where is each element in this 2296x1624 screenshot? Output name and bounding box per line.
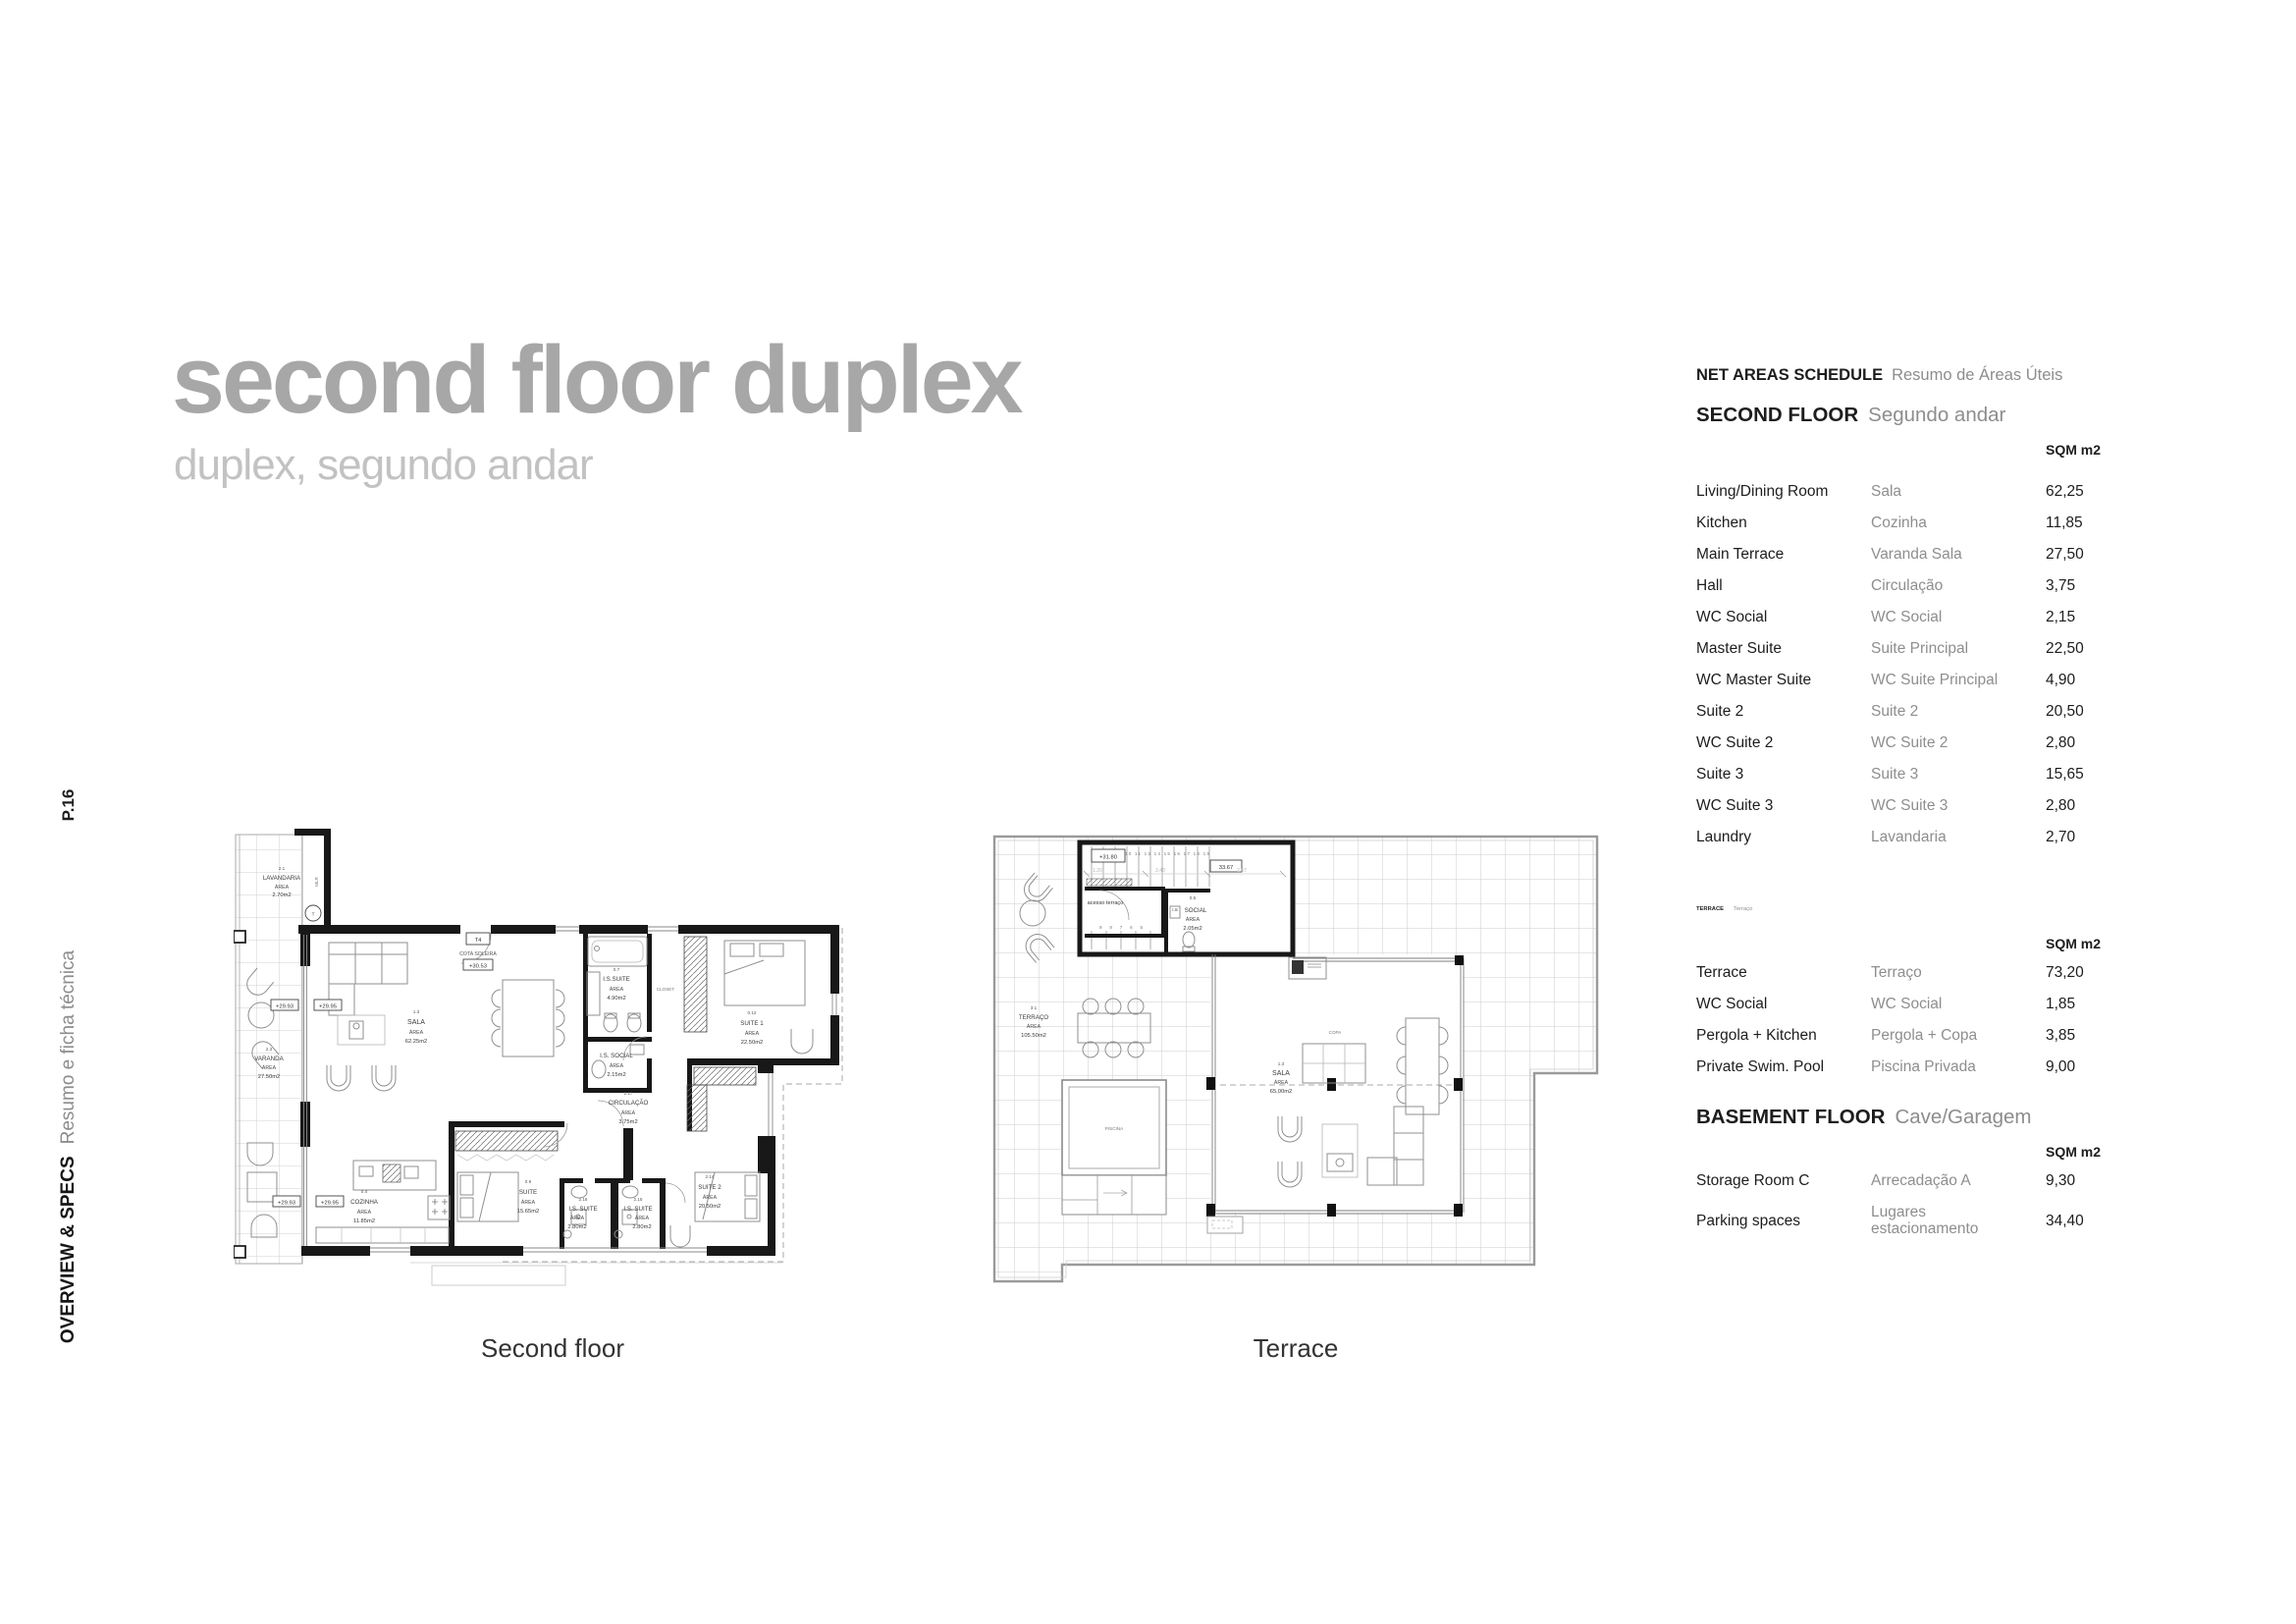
- sidebar-section-en: OVERVIEW & SPECS: [58, 1156, 79, 1343]
- page-subtitle: duplex, segundo andar: [174, 441, 1021, 490]
- room-name: SALA: [407, 1019, 425, 1026]
- row-pt: Lugares estacionamento: [1871, 1204, 1999, 1237]
- armchairs: [327, 1065, 396, 1091]
- schedule-title-pt: Resumo de Áreas Úteis: [1892, 366, 2062, 384]
- armchair-suite2: [670, 1225, 690, 1247]
- row-en: Laundry: [1696, 829, 1871, 845]
- room-sqm: 20.50m2: [699, 1204, 721, 1210]
- plan1-room-labels: 2.1 LAVANDARIA ÁREA 2.70m2 2.3 VARANDA Á…: [254, 866, 764, 1230]
- room-name: SUITE 2: [698, 1184, 721, 1191]
- unit-header-row: SQM m2: [1696, 442, 2124, 458]
- area-word: ÁREA: [1274, 1079, 1289, 1086]
- table-row: TerraceTerraço73,20: [1696, 964, 2124, 981]
- room-no: 3.1: [1031, 1005, 1038, 1010]
- unit-header-row: SQM m2: [1696, 1144, 2124, 1160]
- unit-header: SQM m2: [2046, 442, 2124, 458]
- row-en: Storage Room C: [1696, 1172, 1871, 1189]
- row-en: Kitchen: [1696, 514, 1871, 531]
- table-row: LaundryLavandaria2,70: [1696, 829, 2124, 845]
- section-name-pt: Cave/Garagem: [1895, 1106, 2031, 1128]
- room-sqm: 27.50m2: [258, 1074, 281, 1080]
- row-pt: WC Suite Principal: [1871, 672, 1999, 688]
- row-en: Hall: [1696, 577, 1871, 594]
- counter-divisions: [342, 1227, 425, 1243]
- row-pt: WC Social: [1871, 609, 1999, 625]
- table-row: Storage Room CArrecadação A9,30: [1696, 1172, 2124, 1189]
- level-marker: +29.95: [319, 1004, 337, 1010]
- room-no: 0.5: [1190, 895, 1197, 900]
- room-name: COZINHA: [350, 1199, 379, 1206]
- room-name: LAVANDARIA: [263, 875, 301, 882]
- table-row: Pergola + KitchenPergola + Copa3,85: [1696, 1027, 2124, 1044]
- room-name: I.S. SUITE: [623, 1206, 652, 1213]
- room-no: 0.4: [361, 1189, 368, 1194]
- table-row: WC Suite 3WC Suite 32,80: [1696, 797, 2124, 814]
- row-sqm: 9,00: [2046, 1058, 2124, 1075]
- room-name: SUITE 1: [740, 1020, 764, 1027]
- row-pt: Cozinha: [1871, 514, 1999, 531]
- dining-table: [492, 980, 564, 1056]
- room-sqm: 22.50m2: [741, 1040, 764, 1046]
- machine-label: MLR: [314, 876, 319, 886]
- section-name-en: BASEMENT FLOOR: [1696, 1106, 1885, 1128]
- sidebar-section-pt: Resumo e ficha técnica: [58, 950, 79, 1145]
- row-sqm: 20,50: [2046, 703, 2124, 720]
- room-name: I.S: [1172, 907, 1178, 912]
- kitchen-island: [353, 1161, 436, 1190]
- room-sqm: 15.65m2: [517, 1209, 540, 1215]
- table-row: Master SuiteSuite Principal22,50: [1696, 640, 2124, 657]
- level-marker: +29.95: [321, 1201, 339, 1207]
- row-sqm: 3,85: [2046, 1027, 2124, 1044]
- lower-balcony-outline: [432, 1266, 565, 1285]
- room-sqm: 105.50m2: [1021, 1033, 1046, 1039]
- table-row: Suite 3Suite 315,65: [1696, 766, 2124, 783]
- page-number: P.16: [59, 789, 79, 822]
- row-pt: Piscina Privada: [1871, 1058, 1999, 1075]
- row-sqm: 2,80: [2046, 734, 2124, 751]
- room-name: I.S. SOCIAL: [600, 1053, 633, 1059]
- row-pt: WC Suite 3: [1871, 797, 1999, 814]
- room-sqm: 2.80m2: [632, 1224, 651, 1230]
- row-pt: Terraço: [1871, 964, 1999, 981]
- row-en: WC Suite 3: [1696, 797, 1871, 814]
- area-word: ÁREA: [1186, 916, 1201, 923]
- pool-deck: [1062, 1175, 1166, 1215]
- section-name-pt: Terraço: [1734, 906, 1752, 912]
- roof-overhang-dashed: [499, 928, 842, 1262]
- room-no: 0.12: [748, 1010, 757, 1015]
- terrace-plan: +31.80 33.67 10 11 13 14 15 16 17 18 19 …: [989, 830, 1618, 1291]
- row-sqm: 4,90: [2046, 672, 2124, 688]
- basement-rows: Storage Room CArrecadação A9,30 Parking …: [1696, 1172, 2124, 1237]
- room-sqm: 65,00m2: [1270, 1089, 1293, 1095]
- area-word: ÁREA: [409, 1029, 424, 1036]
- area-word: ÁREA: [703, 1194, 718, 1201]
- row-en: WC Social: [1696, 996, 1871, 1012]
- section-head-second-floor: SECOND FLOORSegundo andar: [1696, 403, 2124, 428]
- plan1-caption: Second floor: [234, 1333, 872, 1363]
- room-no: 2.15: [634, 1197, 643, 1202]
- level-marker: +31.80: [1099, 855, 1117, 861]
- room-sqm: 11.85m2: [353, 1218, 375, 1224]
- area-word: ÁREA: [1027, 1023, 1041, 1030]
- room-name: SUITE: [519, 1189, 537, 1196]
- row-pt: WC Social: [1871, 996, 1999, 1012]
- row-sqm: 2,15: [2046, 609, 2124, 625]
- row-sqm: 11,85: [2046, 514, 2124, 531]
- row-pt: Varanda Sala: [1871, 546, 1999, 563]
- room-name: CLOSET: [657, 987, 675, 992]
- row-sqm: 15,65: [2046, 766, 2124, 783]
- row-pt: Pergola + Copa: [1871, 1027, 1999, 1044]
- step-numbers-top: 10 11 13 14 15 16 17 18 19: [1125, 851, 1209, 856]
- row-en: Pergola + Kitchen: [1696, 1027, 1871, 1044]
- row-en: Suite 3: [1696, 766, 1871, 783]
- room-sqm: 62.25m2: [405, 1039, 428, 1045]
- terrace-rows: TerraceTerraço73,20 WC SocialWC Social1,…: [1696, 964, 2124, 1075]
- dim-label: 1.20: [1093, 868, 1102, 874]
- table-row: WC Master SuiteWC Suite Principal4,90: [1696, 672, 2124, 688]
- row-sqm: 1,85: [2046, 996, 2124, 1012]
- table-row: Main TerraceVaranda Sala27,50: [1696, 546, 2124, 563]
- row-sqm: 2,70: [2046, 829, 2124, 845]
- armchair-suite1: [791, 1029, 813, 1054]
- table-row: KitchenCozinha11,85: [1696, 514, 2124, 531]
- area-word: ÁREA: [610, 1062, 624, 1069]
- kitchen-counter: [316, 1227, 449, 1243]
- table-row: WC Suite 2WC Suite 22,80: [1696, 734, 2124, 751]
- toilets-is-suite: [604, 1013, 641, 1032]
- room-sqm: 4.90m2: [607, 996, 625, 1001]
- room-no: 2.16: [579, 1197, 588, 1202]
- room-no: 2.14: [706, 1174, 715, 1179]
- bed-suite1: [724, 941, 805, 1005]
- vanity: [587, 972, 600, 1015]
- row-sqm: 34,40: [2046, 1213, 2124, 1229]
- area-word: ÁREA: [745, 1030, 760, 1037]
- unit-header: SQM m2: [2046, 936, 2124, 951]
- second-floor-rows: Living/Dining RoomSala62,25 KitchenCozin…: [1696, 483, 2124, 845]
- table-row: Parking spacesLugares estacionamento34,4…: [1696, 1204, 2124, 1237]
- room-no: 0.9: [525, 1179, 532, 1184]
- area-word: ÁREA: [357, 1209, 372, 1216]
- table-row: WC SocialWC Social2,15: [1696, 609, 2124, 625]
- row-en: Master Suite: [1696, 640, 1871, 657]
- table-row: HallCirculação3,75: [1696, 577, 2124, 594]
- row-pt: Suite Principal: [1871, 640, 1999, 657]
- section-head-basement: BASEMENT FLOORCave/Garagem: [1696, 1105, 2124, 1130]
- row-en: WC Master Suite: [1696, 672, 1871, 688]
- net-areas-schedule: NET AREAS SCHEDULEResumo de Áreas Úteis …: [1696, 365, 2124, 1252]
- room-sqm: 3.75m2: [618, 1119, 637, 1125]
- area-word: ÁREA: [275, 884, 290, 891]
- room-sqm: 2.80m2: [567, 1224, 586, 1230]
- cota-soleira-label: COTA SOLEIRA: [459, 951, 497, 957]
- row-en: WC Suite 2: [1696, 734, 1871, 751]
- area-word: ÁREA: [635, 1215, 650, 1221]
- room-name: CIRCULAÇÃO: [609, 1100, 649, 1107]
- sidebar-section-label: OVERVIEW & SPECSResumo e ficha técnica: [58, 950, 80, 1343]
- area-word: ÁREA: [610, 986, 624, 993]
- row-en: Terrace: [1696, 964, 1871, 981]
- row-pt: Suite 3: [1871, 766, 1999, 783]
- title-block: second floor duplex duplex, segundo anda…: [172, 332, 1021, 490]
- coffee-table: [338, 1015, 385, 1045]
- section-name-en: TERRACE: [1696, 906, 1724, 912]
- dim-label: 2.40: [1155, 868, 1165, 874]
- t4-label: T4: [475, 938, 483, 944]
- room-name: VARANDA: [254, 1056, 284, 1062]
- room-no: 1.3: [1278, 1061, 1285, 1066]
- stair-hatch: [1087, 879, 1132, 886]
- area-word: ÁREA: [521, 1199, 536, 1206]
- unit-header-row: SQM m2: [1696, 936, 2124, 951]
- section-head-terrace: TERRACETerraço: [1696, 896, 2124, 922]
- row-en: Private Swim. Pool: [1696, 1058, 1871, 1075]
- bed-suite: [457, 1172, 518, 1221]
- schedule-title-en: NET AREAS SCHEDULE: [1696, 366, 1883, 384]
- row-sqm: 2,80: [2046, 797, 2124, 814]
- page-title: second floor duplex: [172, 332, 1021, 427]
- room-name: SALA: [1272, 1070, 1290, 1077]
- section-name-en: SECOND FLOOR: [1696, 404, 1858, 426]
- room-sqm: 2.05m2: [1183, 926, 1201, 932]
- room-no: 0.7: [614, 967, 620, 972]
- room-no: 2.17: [624, 1091, 633, 1096]
- level-marker: +29.93: [278, 1201, 295, 1207]
- bathtub: [588, 937, 647, 966]
- area-word: ÁREA: [570, 1215, 585, 1221]
- row-sqm: 73,20: [2046, 964, 2124, 981]
- unit-header: SQM m2: [2046, 1144, 2124, 1160]
- row-sqm: 62,25: [2046, 483, 2124, 500]
- schedule-title: NET AREAS SCHEDULEResumo de Áreas Úteis: [1696, 365, 2124, 385]
- area-word: ÁREA: [621, 1110, 636, 1116]
- room-name: TERRAÇO: [1019, 1014, 1048, 1021]
- room-name: PISCINA: [1105, 1126, 1124, 1131]
- level-marker: +29.93: [276, 1004, 294, 1010]
- room-sqm: 2.70m2: [272, 893, 291, 898]
- cota-marker: 33.67: [1219, 865, 1234, 871]
- row-sqm: 9,30: [2046, 1172, 2124, 1189]
- row-pt: Sala: [1871, 483, 1999, 500]
- row-pt: Arrecadação A: [1871, 1172, 1999, 1189]
- dim-label: 2.67: [1237, 868, 1247, 874]
- row-en: Living/Dining Room: [1696, 483, 1871, 500]
- plan2-caption: Terrace: [989, 1333, 1602, 1363]
- area-word: ÁREA: [262, 1064, 277, 1071]
- step-numbers-bottom: 9 8 7 6 5: [1099, 925, 1143, 930]
- row-sqm: 27,50: [2046, 546, 2124, 563]
- row-pt: Suite 2: [1871, 703, 1999, 720]
- row-en: WC Social: [1696, 609, 1871, 625]
- room-name: COPA: [1329, 1030, 1343, 1035]
- room-name: I.S. SUITE: [568, 1206, 597, 1213]
- table-row: WC SocialWC Social1,85: [1696, 996, 2124, 1012]
- room-name: SOCIAL: [1185, 907, 1207, 914]
- room-no: 1.3: [413, 1009, 420, 1014]
- row-pt: Lavandaria: [1871, 829, 1999, 845]
- row-pt: Circulação: [1871, 577, 1999, 594]
- room-no: 2.3: [266, 1047, 273, 1052]
- second-floor-plan: T4 COTA SOLEIRA +30.53 +29.93 +29.95 +29…: [234, 827, 872, 1288]
- room-sqm: 2.15m2: [607, 1072, 625, 1078]
- row-en: Main Terrace: [1696, 546, 1871, 563]
- section-name-pt: Segundo andar: [1868, 404, 2005, 426]
- table-row: Private Swim. PoolPiscina Privada9,00: [1696, 1058, 2124, 1075]
- table-row: Living/Dining RoomSala62,25: [1696, 483, 2124, 500]
- row-en: Suite 2: [1696, 703, 1871, 720]
- room-name: acesso terraço: [1088, 900, 1124, 906]
- row-sqm: 22,50: [2046, 640, 2124, 657]
- room-no: 2.1: [279, 866, 286, 871]
- row-en: Parking spaces: [1696, 1213, 1871, 1229]
- heater-label: T: [312, 912, 315, 917]
- row-pt: WC Suite 2: [1871, 734, 1999, 751]
- table-row: Suite 2Suite 220,50: [1696, 703, 2124, 720]
- cota-soleira-value: +30.53: [469, 964, 487, 970]
- row-sqm: 3,75: [2046, 577, 2124, 594]
- room-name: I.S.SUITE: [603, 976, 630, 983]
- stove: [428, 1196, 450, 1219]
